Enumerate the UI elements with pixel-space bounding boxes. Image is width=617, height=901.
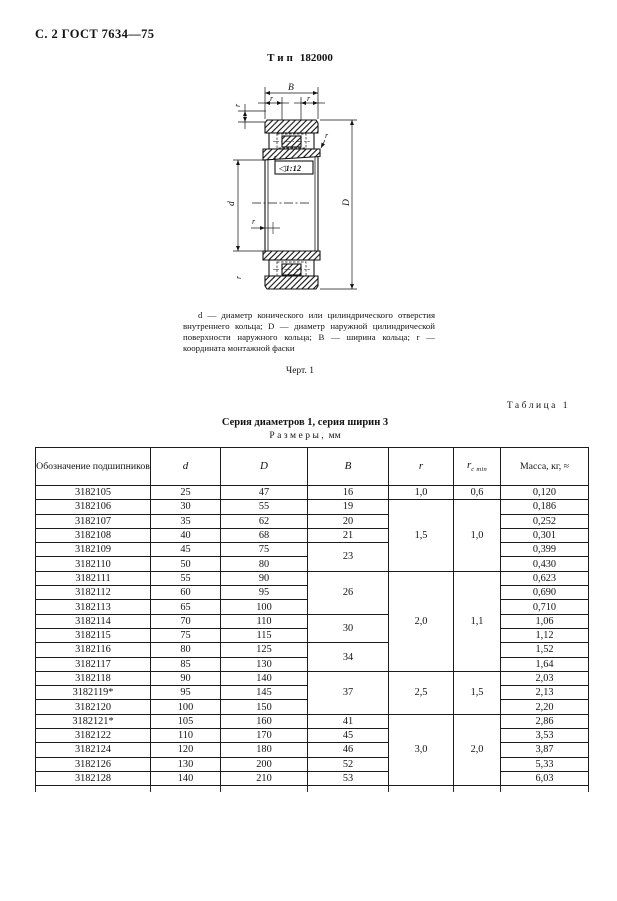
cell-designation: 3182114: [36, 614, 151, 628]
cell-d: 80: [151, 643, 221, 657]
cell-mass: 2,86: [501, 714, 589, 728]
cell-mass: 0,120: [501, 486, 589, 500]
cell-mass: 0,252: [501, 514, 589, 528]
dim-label-B: B: [288, 83, 294, 93]
cell-designation: 3182120: [36, 700, 151, 714]
table-row: 318211470110301,06: [36, 614, 589, 628]
page-header: С. 2 ГОСТ 7634—75: [35, 27, 154, 42]
cell-D: 80: [221, 557, 308, 571]
cell-mass: 0,690: [501, 586, 589, 600]
cell-designation: 3182106: [36, 500, 151, 514]
cell-mass: 5,33: [501, 757, 589, 771]
cell-designation: 3182117: [36, 657, 151, 671]
cell-designation: 3182115: [36, 628, 151, 642]
cell-d: 105: [151, 714, 221, 728]
cell-r: 1,0: [389, 486, 454, 500]
col-designation: Обозначение подшипников: [36, 448, 151, 486]
dim-label-r: r: [252, 217, 256, 226]
table-row: 318211890140372,51,52,03: [36, 671, 589, 685]
cell-designation: 3182105: [36, 486, 151, 500]
type-number: 182000: [300, 52, 333, 64]
header-row: Обозначение подшипников d D B r rс min М…: [36, 448, 589, 486]
cell-B: 21: [308, 528, 389, 542]
bearing-diagram: B r r r r r r d D ◁1:12: [225, 76, 375, 310]
cell-D: 140: [221, 671, 308, 685]
table-row: 318211680125341,52: [36, 643, 589, 657]
table-subtitle-unit: мм: [329, 431, 341, 441]
figure-caption: d — диаметр конического или цилиндрическ…: [183, 310, 435, 354]
cell-mass: 3,87: [501, 743, 589, 757]
cell-designation: 3182108: [36, 528, 151, 542]
cell-r1: 1,1: [454, 571, 501, 671]
table-row: 31821094575230,399: [36, 543, 589, 557]
cell-D: 180: [221, 743, 308, 757]
cell-mass: 1,06: [501, 614, 589, 628]
cell-r: 2,5: [389, 671, 454, 714]
cell-D: 160: [221, 714, 308, 728]
col-mass: Масса, кг, ≈: [501, 448, 589, 486]
table-row: 31821084068210,301: [36, 528, 589, 542]
cell-r: 2,0: [389, 571, 454, 671]
table-row: 3182128140210536,03: [36, 771, 589, 785]
cell-D: 47: [221, 486, 308, 500]
cell-d: 110: [151, 729, 221, 743]
cell-designation: 3182119*: [36, 686, 151, 700]
cell-d: 140: [151, 771, 221, 785]
cell-B: 23: [308, 543, 389, 572]
cell-d: 65: [151, 600, 221, 614]
cell-designation: 3182122: [36, 729, 151, 743]
table-row: 3182122110170453,53: [36, 729, 589, 743]
cell-D: 100: [221, 600, 308, 614]
cell-B: 26: [308, 571, 389, 614]
col-d: d: [151, 448, 221, 486]
col-B: B: [308, 448, 389, 486]
table-row: 3182124120180463,87: [36, 743, 589, 757]
cell-d: 120: [151, 743, 221, 757]
cell-B: 53: [308, 771, 389, 785]
figure-number: Черт. 1: [225, 366, 375, 376]
col-r: r: [389, 448, 454, 486]
table-row: 3182121*105160413,02,02,86: [36, 714, 589, 728]
cell-d: 85: [151, 657, 221, 671]
cell-d: 70: [151, 614, 221, 628]
cell-mass: 1,64: [501, 657, 589, 671]
table-wrap: Обозначение подшипников d D B r rс min М…: [35, 447, 590, 786]
col-r1-min: rс min: [454, 448, 501, 486]
cell-B: 34: [308, 643, 389, 672]
table-row: 31821073562200,252: [36, 514, 589, 528]
cell-mass: 0,301: [501, 528, 589, 542]
cell-D: 55: [221, 500, 308, 514]
cell-d: 40: [151, 528, 221, 542]
cell-designation: 3182124: [36, 743, 151, 757]
table-subtitle-word: Размеры,: [269, 431, 326, 441]
table-row: 3182126130200525,33: [36, 757, 589, 771]
table-subtitle: Размеры, мм: [35, 431, 575, 441]
dim-label-r: r: [234, 275, 243, 279]
table-row: 31821115590262,01,10,623: [36, 571, 589, 585]
cell-designation: 3182118: [36, 671, 151, 685]
cell-d: 55: [151, 571, 221, 585]
cell-B: 19: [308, 500, 389, 514]
cell-D: 115: [221, 628, 308, 642]
cell-designation: 3182109: [36, 543, 151, 557]
cell-B: 52: [308, 757, 389, 771]
cell-D: 110: [221, 614, 308, 628]
table-title: Серия диаметров 1, серия ширин 3: [35, 417, 575, 428]
cell-D: 145: [221, 686, 308, 700]
cell-designation: 3182126: [36, 757, 151, 771]
dim-label-D: D: [342, 199, 352, 207]
cell-B: 37: [308, 671, 389, 714]
cell-D: 210: [221, 771, 308, 785]
cell-designation: 3182110: [36, 557, 151, 571]
dim-label-r: r: [270, 94, 274, 103]
dim-label-r: r: [233, 103, 242, 107]
cell-designation: 3182107: [36, 514, 151, 528]
cell-r1: 1,5: [454, 671, 501, 714]
cell-designation: 3182121*: [36, 714, 151, 728]
cell-B: 41: [308, 714, 389, 728]
dim-label-d: d: [227, 201, 237, 206]
cell-d: 60: [151, 586, 221, 600]
cell-d: 25: [151, 486, 221, 500]
cell-D: 75: [221, 543, 308, 557]
cell-mass: 0,430: [501, 557, 589, 571]
cell-mass: 2,20: [501, 700, 589, 714]
col-D: D: [221, 448, 308, 486]
table-row: 31821063055191,51,00,186: [36, 500, 589, 514]
cell-mass: 1,52: [501, 643, 589, 657]
cell-D: 170: [221, 729, 308, 743]
cell-designation: 3182112: [36, 586, 151, 600]
cell-mass: 0,399: [501, 543, 589, 557]
cell-r1: 1,0: [454, 500, 501, 571]
cell-r1: 0,6: [454, 486, 501, 500]
type-word: Тип: [267, 52, 296, 64]
cell-d: 75: [151, 628, 221, 642]
cell-mass: 3,53: [501, 729, 589, 743]
cell-D: 62: [221, 514, 308, 528]
cell-designation: 3182113: [36, 600, 151, 614]
cell-r: 1,5: [389, 500, 454, 571]
cell-mass: 2,13: [501, 686, 589, 700]
figure-type-label: Тип182000: [225, 52, 375, 64]
cell-mass: 0,623: [501, 571, 589, 585]
taper-label: ◁1:12: [279, 163, 302, 173]
document-page: С. 2 ГОСТ 7634—75 Тип182000: [0, 0, 617, 901]
cell-B: 20: [308, 514, 389, 528]
cell-mass: 6,03: [501, 771, 589, 785]
cell-designation: 3182128: [36, 771, 151, 785]
cell-d: 50: [151, 557, 221, 571]
cell-d: 30: [151, 500, 221, 514]
cell-mass: 0,710: [501, 600, 589, 614]
cell-d: 130: [151, 757, 221, 771]
bearings-table: Обозначение подшипников d D B r rс min М…: [35, 447, 589, 786]
cell-d: 90: [151, 671, 221, 685]
cell-d: 45: [151, 543, 221, 557]
cell-D: 90: [221, 571, 308, 585]
cell-designation: 3182116: [36, 643, 151, 657]
cell-B: 46: [308, 743, 389, 757]
cell-r: 3,0: [389, 714, 454, 785]
cell-d: 100: [151, 700, 221, 714]
dim-label-r: r: [325, 131, 329, 140]
cell-D: 68: [221, 528, 308, 542]
cell-D: 125: [221, 643, 308, 657]
cell-D: 200: [221, 757, 308, 771]
cell-d: 95: [151, 686, 221, 700]
table-row: 31821052547161,00,60,120: [36, 486, 589, 500]
cell-mass: 0,186: [501, 500, 589, 514]
cell-B: 16: [308, 486, 389, 500]
cell-D: 95: [221, 586, 308, 600]
cell-d: 35: [151, 514, 221, 528]
cell-r1: 2,0: [454, 714, 501, 785]
cell-B: 45: [308, 729, 389, 743]
cell-mass: 2,03: [501, 671, 589, 685]
cell-designation: 3182111: [36, 571, 151, 585]
cell-D: 130: [221, 657, 308, 671]
dim-label-r: r: [307, 94, 311, 103]
cell-B: 30: [308, 614, 389, 643]
table-label: Таблица 1: [35, 401, 570, 411]
cell-D: 150: [221, 700, 308, 714]
cell-mass: 1,12: [501, 628, 589, 642]
